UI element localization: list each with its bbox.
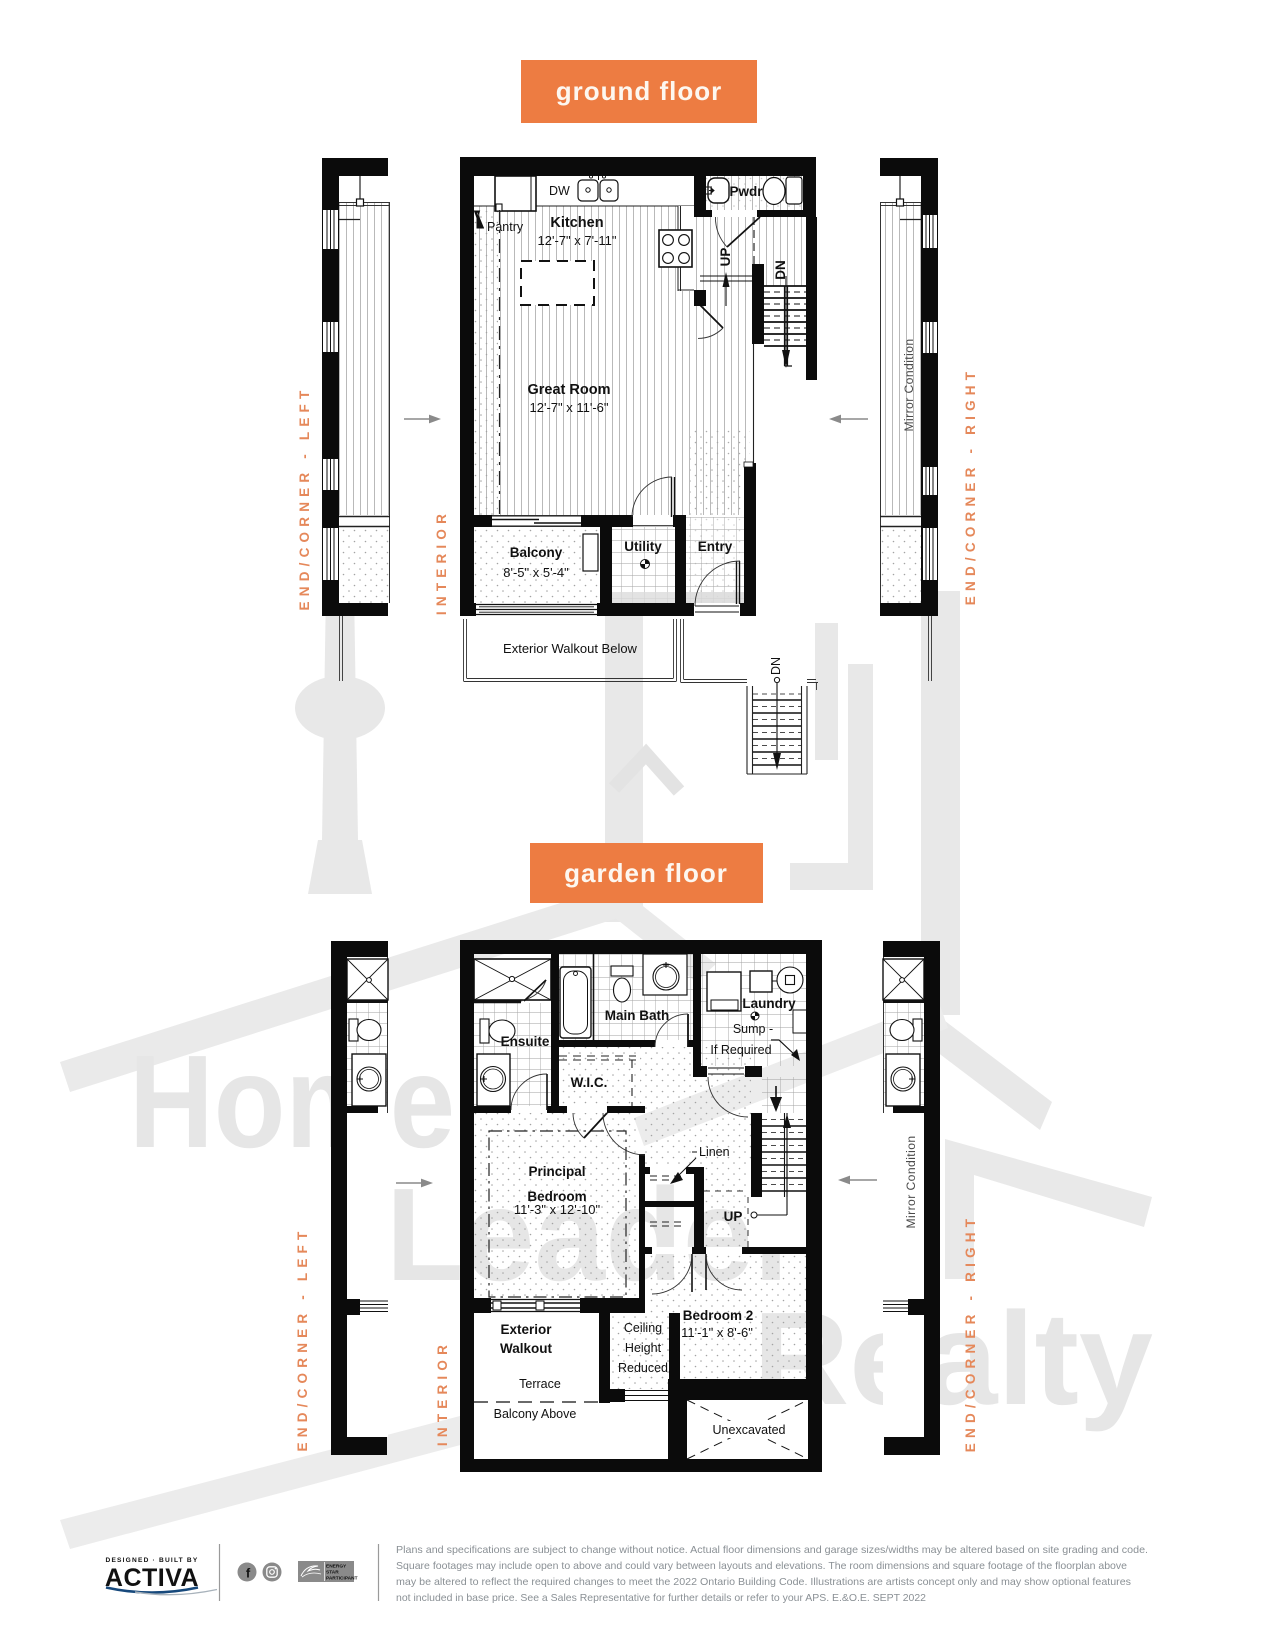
svg-text:Pwdr: Pwdr <box>729 184 763 199</box>
svg-text:DESIGNED · BUILT BY: DESIGNED · BUILT BY <box>105 1557 198 1564</box>
svg-text:Exterior Walkout Below: Exterior Walkout Below <box>503 641 638 656</box>
svg-text:INTERIOR: INTERIOR <box>434 509 449 615</box>
svg-text:Reduced: Reduced <box>618 1361 668 1375</box>
svg-text:PARTICIPANT: PARTICIPANT <box>326 1576 358 1582</box>
svg-text:Mirror Condition: Mirror Condition <box>902 338 916 431</box>
svg-text:DN: DN <box>773 260 788 280</box>
svg-text:8'-5" x 5'-4": 8'-5" x 5'-4" <box>503 565 569 580</box>
svg-text:Entry: Entry <box>698 539 733 554</box>
svg-text:ground floor: ground floor <box>556 76 723 106</box>
svg-text:Ensuite: Ensuite <box>501 1034 550 1049</box>
svg-text:Principal: Principal <box>528 1164 585 1179</box>
svg-text:Terrace: Terrace <box>519 1377 561 1391</box>
svg-text:Walkout: Walkout <box>500 1341 553 1356</box>
svg-text:ACTIVA: ACTIVA <box>105 1564 199 1592</box>
svg-text:Main Bath: Main Bath <box>605 1008 670 1023</box>
svg-text:Square footages may include op: Square footages may include open to abov… <box>396 1560 1127 1572</box>
svg-text:11'-1" x 8'-6": 11'-1" x 8'-6" <box>681 1325 753 1340</box>
svg-text:Unexcavated: Unexcavated <box>713 1423 786 1437</box>
svg-text:If Required: If Required <box>710 1043 771 1057</box>
svg-text:UP: UP <box>724 1209 743 1224</box>
svg-text:Pantry: Pantry <box>487 220 524 234</box>
svg-text:ENERGY: ENERGY <box>326 1564 347 1570</box>
svg-text:Linen: Linen <box>699 1145 730 1159</box>
svg-text:Sump -: Sump - <box>733 1022 773 1036</box>
svg-text:not included in base price. Se: not included in base price. See a Sales … <box>396 1592 926 1604</box>
svg-text:DN: DN <box>769 657 783 675</box>
svg-text:END/CORNER - RIGHT: END/CORNER - RIGHT <box>963 1214 978 1452</box>
svg-text:may be altered to reflect the: may be altered to reflect the required c… <box>396 1576 1131 1588</box>
svg-text:END/CORNER - RIGHT: END/CORNER - RIGHT <box>963 367 978 605</box>
svg-text:Home: Home <box>129 1028 455 1175</box>
svg-text:Balcony Above: Balcony Above <box>494 1407 577 1421</box>
svg-text:INTERIOR: INTERIOR <box>435 1340 450 1446</box>
svg-text:DW: DW <box>549 184 570 198</box>
svg-text:Ceiling: Ceiling <box>624 1321 662 1335</box>
svg-text:garden floor: garden floor <box>564 858 728 888</box>
svg-text:W.I.C.: W.I.C. <box>571 1075 608 1090</box>
svg-text:UP: UP <box>718 248 733 267</box>
svg-text:Height: Height <box>625 1341 662 1355</box>
svg-text:Utility: Utility <box>624 539 662 554</box>
svg-text:END/CORNER - LEFT: END/CORNER - LEFT <box>295 1227 310 1452</box>
svg-text:11'-3" x 12'-10": 11'-3" x 12'-10" <box>514 1202 601 1217</box>
svg-text:Plans and specifications are s: Plans and specifications are subject to … <box>396 1544 1148 1556</box>
svg-text:f: f <box>246 1566 251 1581</box>
svg-text:12'-7" x 11'-6": 12'-7" x 11'-6" <box>530 400 609 415</box>
svg-text:Great Room: Great Room <box>528 382 611 398</box>
svg-text:Kitchen: Kitchen <box>550 215 603 231</box>
svg-text:Bedroom 2: Bedroom 2 <box>683 1308 754 1323</box>
svg-text:12'-7" x 7'-11": 12'-7" x 7'-11" <box>538 233 617 248</box>
svg-text:Exterior: Exterior <box>500 1322 552 1337</box>
svg-text:STAR: STAR <box>326 1570 339 1576</box>
svg-text:END/CORNER - LEFT: END/CORNER - LEFT <box>297 386 312 611</box>
svg-text:Laundry: Laundry <box>742 996 796 1011</box>
svg-text:Mirror Condition: Mirror Condition <box>904 1135 918 1228</box>
svg-text:Balcony: Balcony <box>510 545 563 560</box>
